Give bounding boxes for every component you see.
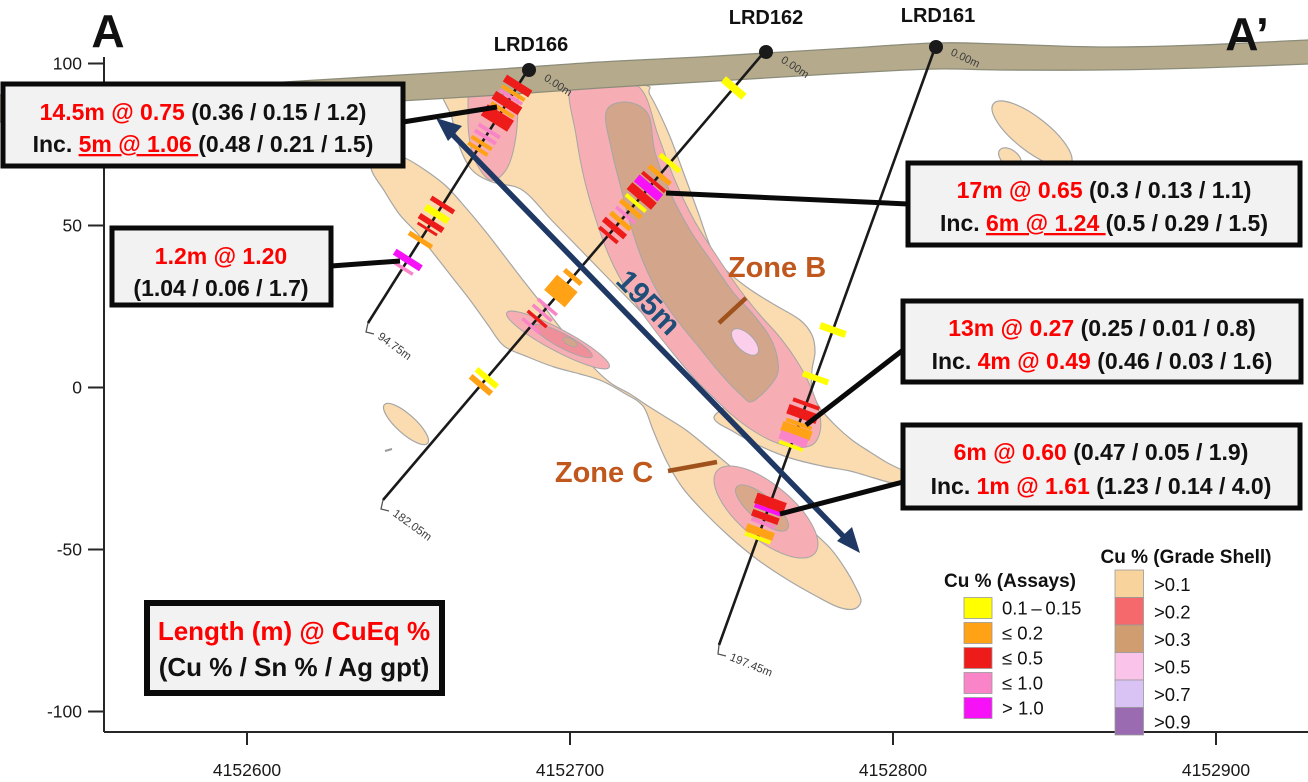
svg-text:> 1.0: > 1.0 — [1002, 698, 1044, 719]
svg-text:4152600: 4152600 — [213, 760, 281, 780]
svg-text:LRD162: LRD162 — [729, 7, 803, 29]
svg-text:4152900: 4152900 — [1182, 760, 1250, 780]
svg-text:LRD166: LRD166 — [494, 34, 568, 56]
svg-text:>0.1: >0.1 — [1154, 574, 1191, 595]
svg-text:Length (m) @ CuEq %: Length (m) @ CuEq % — [158, 616, 430, 646]
svg-text:4152800: 4152800 — [859, 760, 927, 780]
svg-text:Zone B: Zone B — [728, 252, 826, 284]
svg-text:≤ 0.2: ≤ 0.2 — [1002, 623, 1043, 644]
svg-text:Inc. 4m @ 0.49 (0.46 / 0.03 /: Inc. 4m @ 0.49 (0.46 / 0.03 / 1.6) — [932, 348, 1273, 374]
svg-text:4152700: 4152700 — [536, 760, 604, 780]
svg-text:-100: -100 — [47, 702, 82, 722]
svg-text:>0.3: >0.3 — [1154, 629, 1191, 650]
svg-text:>0.7: >0.7 — [1154, 684, 1191, 705]
svg-text:≤ 1.0: ≤ 1.0 — [1002, 673, 1043, 694]
svg-text:A’: A’ — [1225, 8, 1268, 60]
svg-text:0: 0 — [72, 378, 82, 398]
svg-text:6m @ 0.60 (0.47 / 0.05 / 1.9): 6m @ 0.60 (0.47 / 0.05 / 1.9) — [954, 439, 1249, 465]
svg-text:>0.2: >0.2 — [1154, 602, 1191, 623]
svg-text:>0.5: >0.5 — [1154, 657, 1191, 678]
svg-text:LRD161: LRD161 — [901, 5, 975, 27]
svg-text:17m @ 0.65 (0.3 / 0.13 / 1.1): 17m @ 0.65 (0.3 / 0.13 / 1.1) — [957, 177, 1252, 203]
svg-text:A: A — [91, 5, 124, 57]
svg-text:Zone C: Zone C — [555, 457, 653, 489]
svg-text:14.5m @ 0.75 (0.36 / 0.15 / 1: 14.5m @ 0.75 (0.36 / 0.15 / 1.2) — [40, 99, 367, 125]
svg-text:13m @ 0.27 (0.25 / 0.01 / 0.8: 13m @ 0.27 (0.25 / 0.01 / 0.8) — [948, 315, 1256, 341]
svg-text:50: 50 — [63, 216, 83, 236]
svg-text:Cu % (Grade Shell): Cu % (Grade Shell) — [1100, 547, 1271, 568]
svg-text:Inc. 5m @ 1.06 (0.48 / 0.21 /: Inc. 5m @ 1.06 (0.48 / 0.21 / 1.5) — [33, 131, 374, 157]
svg-text:>0.9: >0.9 — [1154, 712, 1191, 733]
svg-text:≤ 0.5: ≤ 0.5 — [1002, 648, 1043, 669]
svg-text:Inc. 1m @ 1.61 (1.23 / 0.14 /: Inc. 1m @ 1.61 (1.23 / 0.14 / 4.0) — [931, 473, 1272, 499]
svg-text:Cu % (Assays): Cu % (Assays) — [944, 571, 1076, 592]
svg-text:(Cu % / Sn % / Ag gpt): (Cu % / Sn % / Ag gpt) — [159, 652, 430, 682]
svg-text:1.2m @ 1.20: 1.2m @ 1.20 — [155, 243, 287, 269]
svg-text:(1.04 / 0.06 / 1.7): (1.04 / 0.06 / 1.7) — [133, 275, 308, 301]
svg-text:0.1 – 0.15: 0.1 – 0.15 — [1002, 598, 1081, 619]
svg-text:Inc. 6m @ 1.24 (0.5 / 0.29 /: Inc. 6m @ 1.24 (0.5 / 0.29 / 1.5) — [940, 210, 1268, 236]
svg-text:-50: -50 — [57, 540, 83, 560]
svg-text:100: 100 — [53, 54, 82, 74]
